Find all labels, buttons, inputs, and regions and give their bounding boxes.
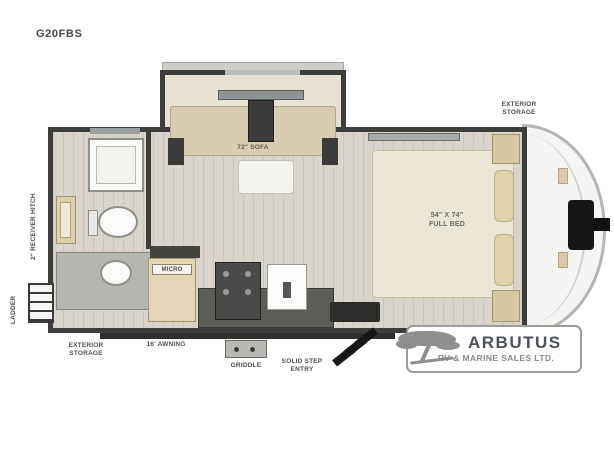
- ladder-label: LADDER: [10, 278, 17, 324]
- exterior-storage-bottom-label: EXTERIOR STORAGE: [58, 342, 114, 358]
- bed-window: [368, 133, 460, 141]
- logo-tagline: RV & MARINE SALES LTD.: [438, 353, 554, 363]
- receiver-hitch-label: 2" RECEIVER HITCH: [30, 160, 37, 260]
- burner-icon: [245, 271, 251, 277]
- hitch-tongue: [592, 218, 610, 231]
- pillow-top: [494, 170, 514, 222]
- overhead-cabinet: [218, 90, 304, 100]
- kitchen-overhead: [150, 246, 200, 258]
- propane-cover: [568, 200, 594, 250]
- sofa-armrest-right: [322, 138, 338, 165]
- awning-label: 16' AWNING: [131, 341, 201, 349]
- arbutus-tree-icon: [396, 327, 466, 371]
- solid-step-entry-label: SOLID STEP ENTRY: [270, 358, 334, 374]
- pillow-bottom: [494, 234, 514, 286]
- dinette-table: [238, 160, 294, 194]
- burner-icon: [223, 271, 229, 277]
- sofa-label: 72" SOFA: [213, 144, 293, 152]
- entry-bench: [330, 302, 380, 322]
- exterior-storage-top-label: EXTERIOR STORAGE: [488, 101, 550, 117]
- bath-window: [90, 128, 140, 134]
- vanity-sink: [100, 260, 132, 286]
- sofa-console: [248, 100, 274, 142]
- toilet-tank: [88, 210, 98, 236]
- bed-label: 54" X 74" FULL BED: [403, 212, 491, 230]
- griddle-label: GRIDDLE: [219, 362, 273, 370]
- sink-faucet-icon: [283, 282, 291, 298]
- cap-decal-bottom: [558, 252, 568, 268]
- dealer-logo: ARBUTUS RV & MARINE SALES LTD.: [406, 325, 582, 373]
- slideout-window: [225, 70, 300, 75]
- griddle-box: [225, 340, 267, 358]
- sofa-armrest-left: [168, 138, 184, 165]
- micro-label: MICRO: [152, 264, 192, 275]
- griddle-knob-icon: [250, 347, 255, 352]
- wardrobe-mirror: [60, 202, 71, 238]
- bath-wall: [146, 131, 151, 249]
- entry-step-icon: [330, 330, 382, 366]
- cap-decal-top: [558, 168, 568, 184]
- stove: [215, 262, 261, 320]
- shower-pan: [96, 146, 136, 184]
- ladder-icon: [28, 283, 54, 323]
- logo-name: ARBUTUS: [468, 333, 562, 353]
- toilet: [98, 206, 138, 238]
- burner-icon: [223, 289, 229, 295]
- page-root: G20FBS 72" SOFA: [0, 0, 614, 460]
- floorplan: 72" SOFA MICRO 54" X 74": [0, 0, 614, 460]
- burner-icon: [245, 289, 251, 295]
- nightstand-top: [492, 134, 520, 164]
- nightstand-bottom: [492, 290, 520, 322]
- griddle-knob-icon: [234, 347, 239, 352]
